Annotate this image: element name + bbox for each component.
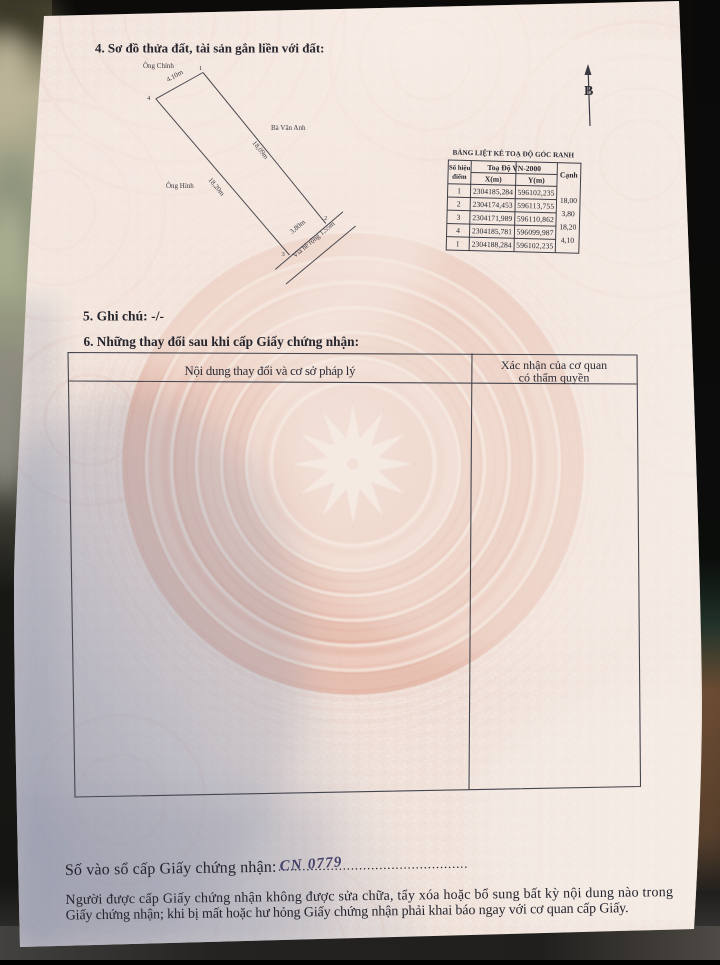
svg-text:2304185,781: 2304185,781 [472,226,512,236]
svg-text:5. Ghi chú: -/-: 5. Ghi chú: -/- [83,309,164,324]
svg-text:2304185,284: 2304185,284 [473,187,513,197]
svg-text:Cạnh: Cạnh [560,170,579,179]
svg-text:6. Những thay đổi sau khi cấp: 6. Những thay đổi sau khi cấp Giấy chứng… [84,334,360,349]
svg-text:3: 3 [282,251,285,258]
svg-text:B: B [584,84,593,99]
svg-text:596099,987: 596099,987 [516,227,553,237]
svg-text:Ông Chính: Ông Chính [143,62,174,70]
svg-text:2304174,453: 2304174,453 [473,200,513,210]
svg-text:Bà Vân Anh: Bà Vân Anh [271,124,306,132]
svg-text:2304188,284: 2304188,284 [472,240,512,250]
svg-text:Số vào sổ cấp Giấy chứng nhận:: Số vào sổ cấp Giấy chứng nhận: [65,859,277,879]
svg-text:2: 2 [324,215,327,222]
svg-text:Nội dung thay đổi và cơ sở phá: Nội dung thay đổi và cơ sở pháp lý [185,364,357,378]
svg-text:596113,755: 596113,755 [517,201,554,211]
svg-text:1: 1 [199,65,202,72]
svg-text:Y(m): Y(m) [528,175,546,184]
svg-text:điểm: điểm [452,174,467,181]
svg-text:Ông Hình: Ông Hình [166,182,194,190]
svg-text:18,20: 18,20 [559,222,577,231]
svg-text:Số hiệu: Số hiệu [449,165,471,173]
svg-text:1: 1 [456,239,460,248]
svg-text:X(m): X(m) [485,174,503,183]
svg-text:596110,862: 596110,862 [517,214,554,224]
svg-text:18,00: 18,00 [560,196,578,205]
svg-text:4: 4 [456,226,460,235]
svg-text:2304171,989: 2304171,989 [472,213,512,223]
svg-text:2: 2 [457,199,461,208]
svg-text:3,80: 3,80 [561,209,575,218]
svg-text:4,10: 4,10 [561,235,575,244]
svg-text:3: 3 [456,213,460,222]
svg-text:4. Sơ đồ thửa đất, tài sản gắn: 4. Sơ đồ thửa đất, tài sản gắn liền với … [95,41,325,56]
svg-text:1: 1 [457,186,461,195]
svg-text:596102,235: 596102,235 [516,241,553,251]
svg-text:Toạ Độ VN-2000: Toạ Độ VN-2000 [487,163,541,173]
svg-text:596102,235: 596102,235 [517,188,554,198]
svg-text:có thẩm quyền: có thẩm quyền [519,371,590,385]
